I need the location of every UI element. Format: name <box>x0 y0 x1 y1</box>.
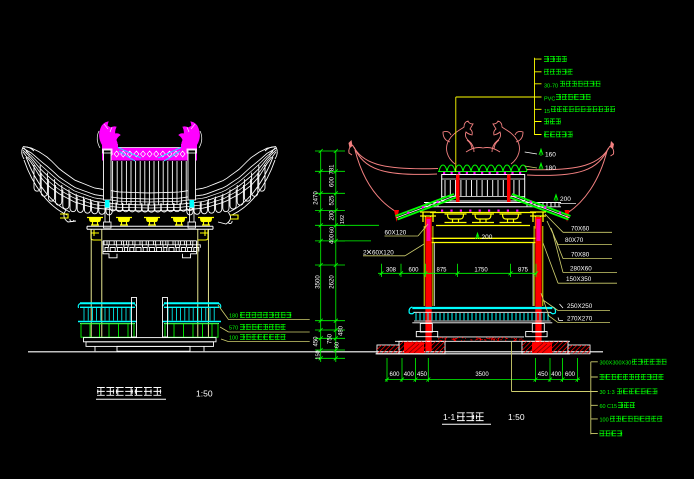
svg-text:200: 200 <box>330 210 336 221</box>
svg-text:160: 160 <box>545 152 556 159</box>
svg-text:400: 400 <box>404 372 415 378</box>
svg-text:1-1: 1-1 <box>443 412 456 422</box>
svg-text:400: 400 <box>330 233 336 244</box>
svg-text:280X60: 280X60 <box>570 265 592 272</box>
svg-text:875: 875 <box>436 268 447 274</box>
svg-text:60: 60 <box>335 342 341 348</box>
svg-text:308: 308 <box>386 268 397 274</box>
svg-text:2: 2 <box>363 249 367 256</box>
svg-text:100: 100 <box>600 417 609 423</box>
svg-text:180: 180 <box>545 165 556 172</box>
svg-text:400: 400 <box>551 372 562 378</box>
svg-text:250X250: 250X250 <box>567 303 593 310</box>
svg-text:2470: 2470 <box>314 191 320 205</box>
svg-text:3500: 3500 <box>475 372 489 378</box>
svg-text:30-70: 30-70 <box>544 83 558 89</box>
svg-text:525: 525 <box>330 195 336 206</box>
svg-text:1:3: 1:3 <box>607 390 615 396</box>
svg-text:200: 200 <box>482 234 493 241</box>
svg-text:270X270: 270X270 <box>567 316 593 323</box>
svg-text:180: 180 <box>229 314 238 320</box>
svg-text:60: 60 <box>600 404 606 410</box>
svg-text:150: 150 <box>316 350 322 359</box>
svg-text:450: 450 <box>538 372 549 378</box>
svg-text:600: 600 <box>565 372 576 378</box>
svg-text:781: 781 <box>330 164 336 175</box>
svg-text:60X120: 60X120 <box>385 230 407 237</box>
svg-text:60: 60 <box>330 227 336 233</box>
svg-text:1750: 1750 <box>474 268 488 274</box>
svg-text:1:50: 1:50 <box>508 412 525 422</box>
svg-text:875: 875 <box>518 268 529 274</box>
svg-text:450: 450 <box>314 336 320 347</box>
svg-text:2620: 2620 <box>330 275 336 289</box>
svg-text:600: 600 <box>389 372 400 378</box>
svg-text:750: 750 <box>328 333 334 344</box>
svg-text:200: 200 <box>560 196 571 203</box>
svg-text:70X60: 70X60 <box>571 226 590 233</box>
svg-text:480: 480 <box>339 325 345 336</box>
svg-text:70X80: 70X80 <box>571 252 590 259</box>
svg-text:15: 15 <box>544 109 550 115</box>
svg-text:100: 100 <box>229 336 238 342</box>
svg-text:192: 192 <box>340 215 346 224</box>
svg-text:80X70: 80X70 <box>565 237 584 244</box>
svg-text:150X350: 150X350 <box>566 276 592 283</box>
svg-text:60X120: 60X120 <box>372 249 394 256</box>
svg-text:C15: C15 <box>607 404 617 410</box>
svg-text:450: 450 <box>417 372 428 378</box>
svg-text:600: 600 <box>408 268 419 274</box>
svg-text:300X300X30: 300X300X30 <box>600 360 632 366</box>
svg-text:30: 30 <box>600 390 606 396</box>
svg-text:570: 570 <box>229 326 238 332</box>
svg-text:3500: 3500 <box>316 275 322 289</box>
svg-text:600: 600 <box>330 176 336 187</box>
svg-text:1:50: 1:50 <box>196 389 213 399</box>
svg-text:PVC: PVC <box>544 97 555 103</box>
